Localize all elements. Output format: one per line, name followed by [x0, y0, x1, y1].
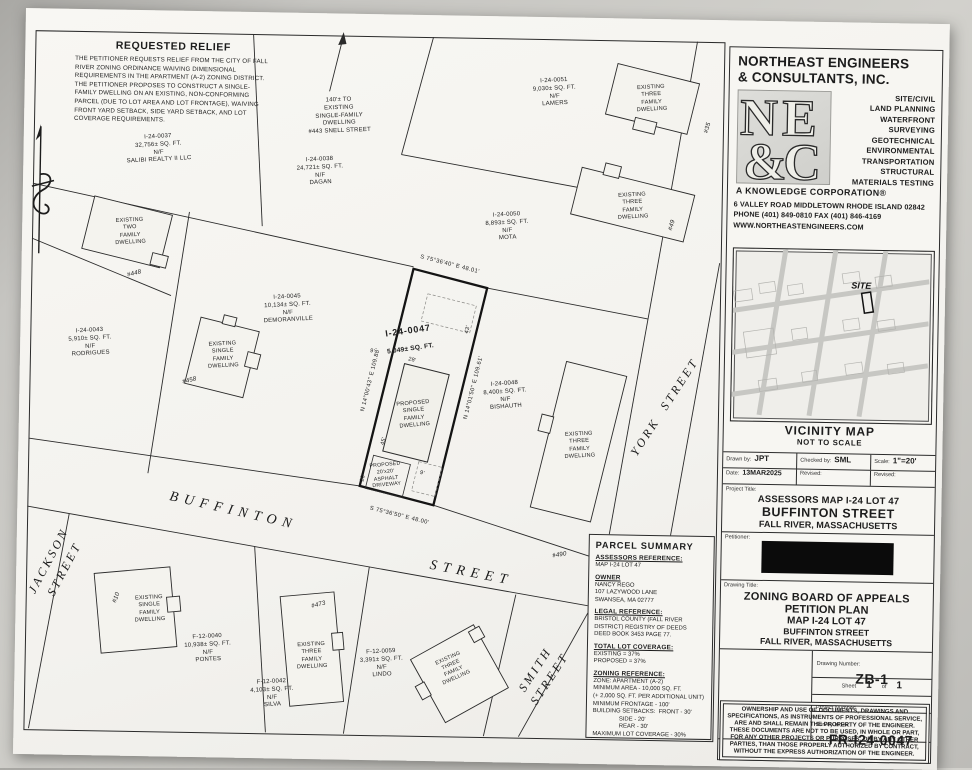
logo-letter-c: C [783, 134, 822, 184]
owner-value: NANCY REGO 107 LAZYWOOD LANE SWANSEA, MA… [595, 582, 707, 607]
drawing-number-label: Drawing Number: [817, 661, 861, 668]
scale-value: 1"=20' [893, 456, 917, 465]
vicinity-caption: VICINITY MAP NOT TO SCALE [723, 422, 935, 449]
lot-line-mota-bishauth [487, 288, 648, 319]
petitioner-redaction [761, 541, 894, 575]
company-tagline: A KNOWLEDGE CORPORATION® [736, 185, 887, 198]
service-transportation: TRANSPORTATION [852, 156, 934, 168]
parcel-label-0043: I-24-00435,910± SQ. FT.N/FRODRIGUES [68, 326, 113, 359]
proposed-driveway-label: PROPOSED 20'x20' ASPHALT DRIVEWAY [369, 461, 402, 491]
parcel-label-0045: I-24-004510,134± SQ. FT.N/FDEMORANVILLE [262, 293, 313, 327]
requested-relief-note: REQUESTED RELIEF THE PETITIONER REQUESTS… [74, 39, 271, 127]
buffinton-north-line [27, 438, 607, 561]
parcel-summary: PARCEL SUMMARY ASSESSORS REFERENCE: MAP … [585, 534, 715, 740]
dwelling-label-10: EXISTING SINGLE FAMILY DWELLING [133, 594, 165, 625]
requested-relief-title: REQUESTED RELIEF [75, 39, 271, 54]
subject-parcel-id: I-24-0047 [384, 322, 432, 340]
checked-by-value: SML [834, 455, 851, 464]
vicinity-streets [731, 248, 930, 417]
project-title-section: Project Title: ASSESSORS MAP I-24 LOT 47… [722, 484, 935, 536]
north-arrow [31, 124, 55, 253]
lot-line-dagan-lamers [401, 37, 433, 156]
drawing-title-section: Drawing Title: ZONING BOARD OF APPEALS P… [720, 580, 933, 653]
revised-label-1: Revised: [800, 471, 822, 477]
date-label: Date: [726, 470, 739, 476]
dwelling-label-448: EXISTING TWO FAMILY DWELLING [114, 217, 146, 248]
title-block-table: Drawn by:JPT Checked by:SML Scale:1"=20'… [718, 451, 935, 743]
services-list: SITE/CIVIL LAND PLANNING WATERFRONT SURV… [852, 93, 936, 189]
scanned-plan-photo: { "requested_relief": { "title": "REQUES… [0, 0, 972, 768]
drawing-number-cell: Drawing Number: ZB-1 [812, 651, 931, 680]
company-name: NORTHEAST ENGINEERS & CONSULTANTS, INC. [738, 53, 910, 87]
vicinity-site-marker [862, 292, 874, 313]
sheet-of-label: of [882, 684, 887, 690]
coverage-value: EXISTING = 37% PROPOSED = 37% [594, 651, 706, 668]
parcel-label-0048: I-24-00488,400± SQ. FT.N/FBISHAUTH [483, 379, 528, 413]
parcel-summary-title: PARCEL SUMMARY [596, 540, 708, 552]
company-website: WWW.NORTHEASTENGINEERS.COM [733, 220, 924, 234]
legal-value: BRISTOL COUNTY (FALL RIVER DISTRICT) REG… [594, 616, 706, 641]
company-address: 6 VALLEY ROAD MIDDLETOWN RHODE ISLAND 02… [733, 199, 925, 234]
sheet-number: 1 [866, 680, 872, 691]
company-name-line2: & CONSULTANTS, INC. [738, 69, 909, 87]
vicinity-map: SITE [730, 247, 935, 424]
sheet-total: 1 [896, 680, 902, 691]
vicinity-site-label: SITE [851, 280, 872, 290]
parcel-label-f0042: F-12-00424,103± SQ. FT.N/FSILVA [250, 678, 295, 711]
drawn-by-label: Drawn by: [726, 456, 751, 462]
revised-label-2: Revised: [874, 472, 896, 478]
project-title-label: Project Title: [726, 486, 757, 493]
sheet-cell: Sheet 1 of 1 [812, 678, 931, 697]
parcel-label-0051: I-24-00519,030± SQ. FT.N/FLAMERS [532, 77, 577, 110]
parcel-label-0038: I-24-003824,721± SQ. FT.N/FDAGAN [296, 155, 344, 189]
snell-street-arrow [330, 33, 347, 91]
drawn-by-value: JPT [754, 454, 769, 463]
parcel-label-f0059: F-12-00593,391± SQ. FT.N/FLINDO [359, 648, 404, 681]
nec-logo: N E & C [736, 89, 832, 185]
parcel-label-0037: I-24-003732,756± SQ. FT.N/FSALIBI REALTY… [125, 132, 191, 167]
drawing-title-line5: FALL RIVER, MASSACHUSETTS [724, 635, 928, 649]
dwelling-label-458: EXISTING SINGLE FAMILY DWELLING [207, 340, 239, 371]
checked-by-label: Checked by: [800, 458, 831, 465]
snell-street-note: 140'± TO EXISTING SINGLE-FAMILY DWELLING… [307, 96, 371, 137]
dwelling-label-49: EXISTING THREE FAMILY DWELLING [616, 191, 648, 222]
zoning-value: ZONE: APARTMENT (A-2) MINIMUM AREA - 10,… [592, 678, 705, 740]
petitioner-label: Petitioner: [725, 534, 750, 540]
parcel-label-f0040: F-12-004010,938± SQ. FT.N/FPONTES [184, 632, 232, 666]
ownership-disclaimer: OWNERSHIP AND USE OF DOCUMENTS, DRAWINGS… [722, 703, 927, 761]
proposed-dwelling-label: PROPOSED SINGLE FAMILY DWELLING [396, 399, 432, 431]
parcel-label-0050: I-24-00508,893± SQ. FT.N/FMOTA [485, 211, 530, 244]
requested-relief-body: THE PETITIONER REQUESTS RELIEF FROM THE … [74, 55, 271, 127]
sheet-label: Sheet [842, 683, 857, 689]
project-title-line3: FALL RIVER, MASSACHUSETTS [726, 518, 930, 532]
assessors-value: MAP I-24 LOT 47 [595, 562, 707, 572]
plan-sheet: REQUESTED RELIEF THE PETITIONER REQUESTS… [13, 8, 950, 770]
logo-letter-amp: & [743, 134, 787, 184]
dwelling-label-473: EXISTING THREE FAMILY DWELLING [296, 641, 328, 672]
date-value: 13MAR2025 [742, 470, 781, 478]
petitioner-section: Petitioner: [721, 532, 934, 584]
title-block: NORTHEAST ENGINEERS & CONSULTANTS, INC. … [717, 46, 943, 764]
dwelling-label-35: EXISTING THREE FAMILY DWELLING [635, 84, 667, 115]
subject-parcel-area: 5,049± SQ. FT. [387, 342, 435, 357]
scale-label: Scale: [874, 459, 890, 465]
dwelling-label-490: EXISTING THREE FAMILY DWELLING [563, 430, 595, 461]
drawing-title-label: Drawing Title: [724, 582, 758, 589]
